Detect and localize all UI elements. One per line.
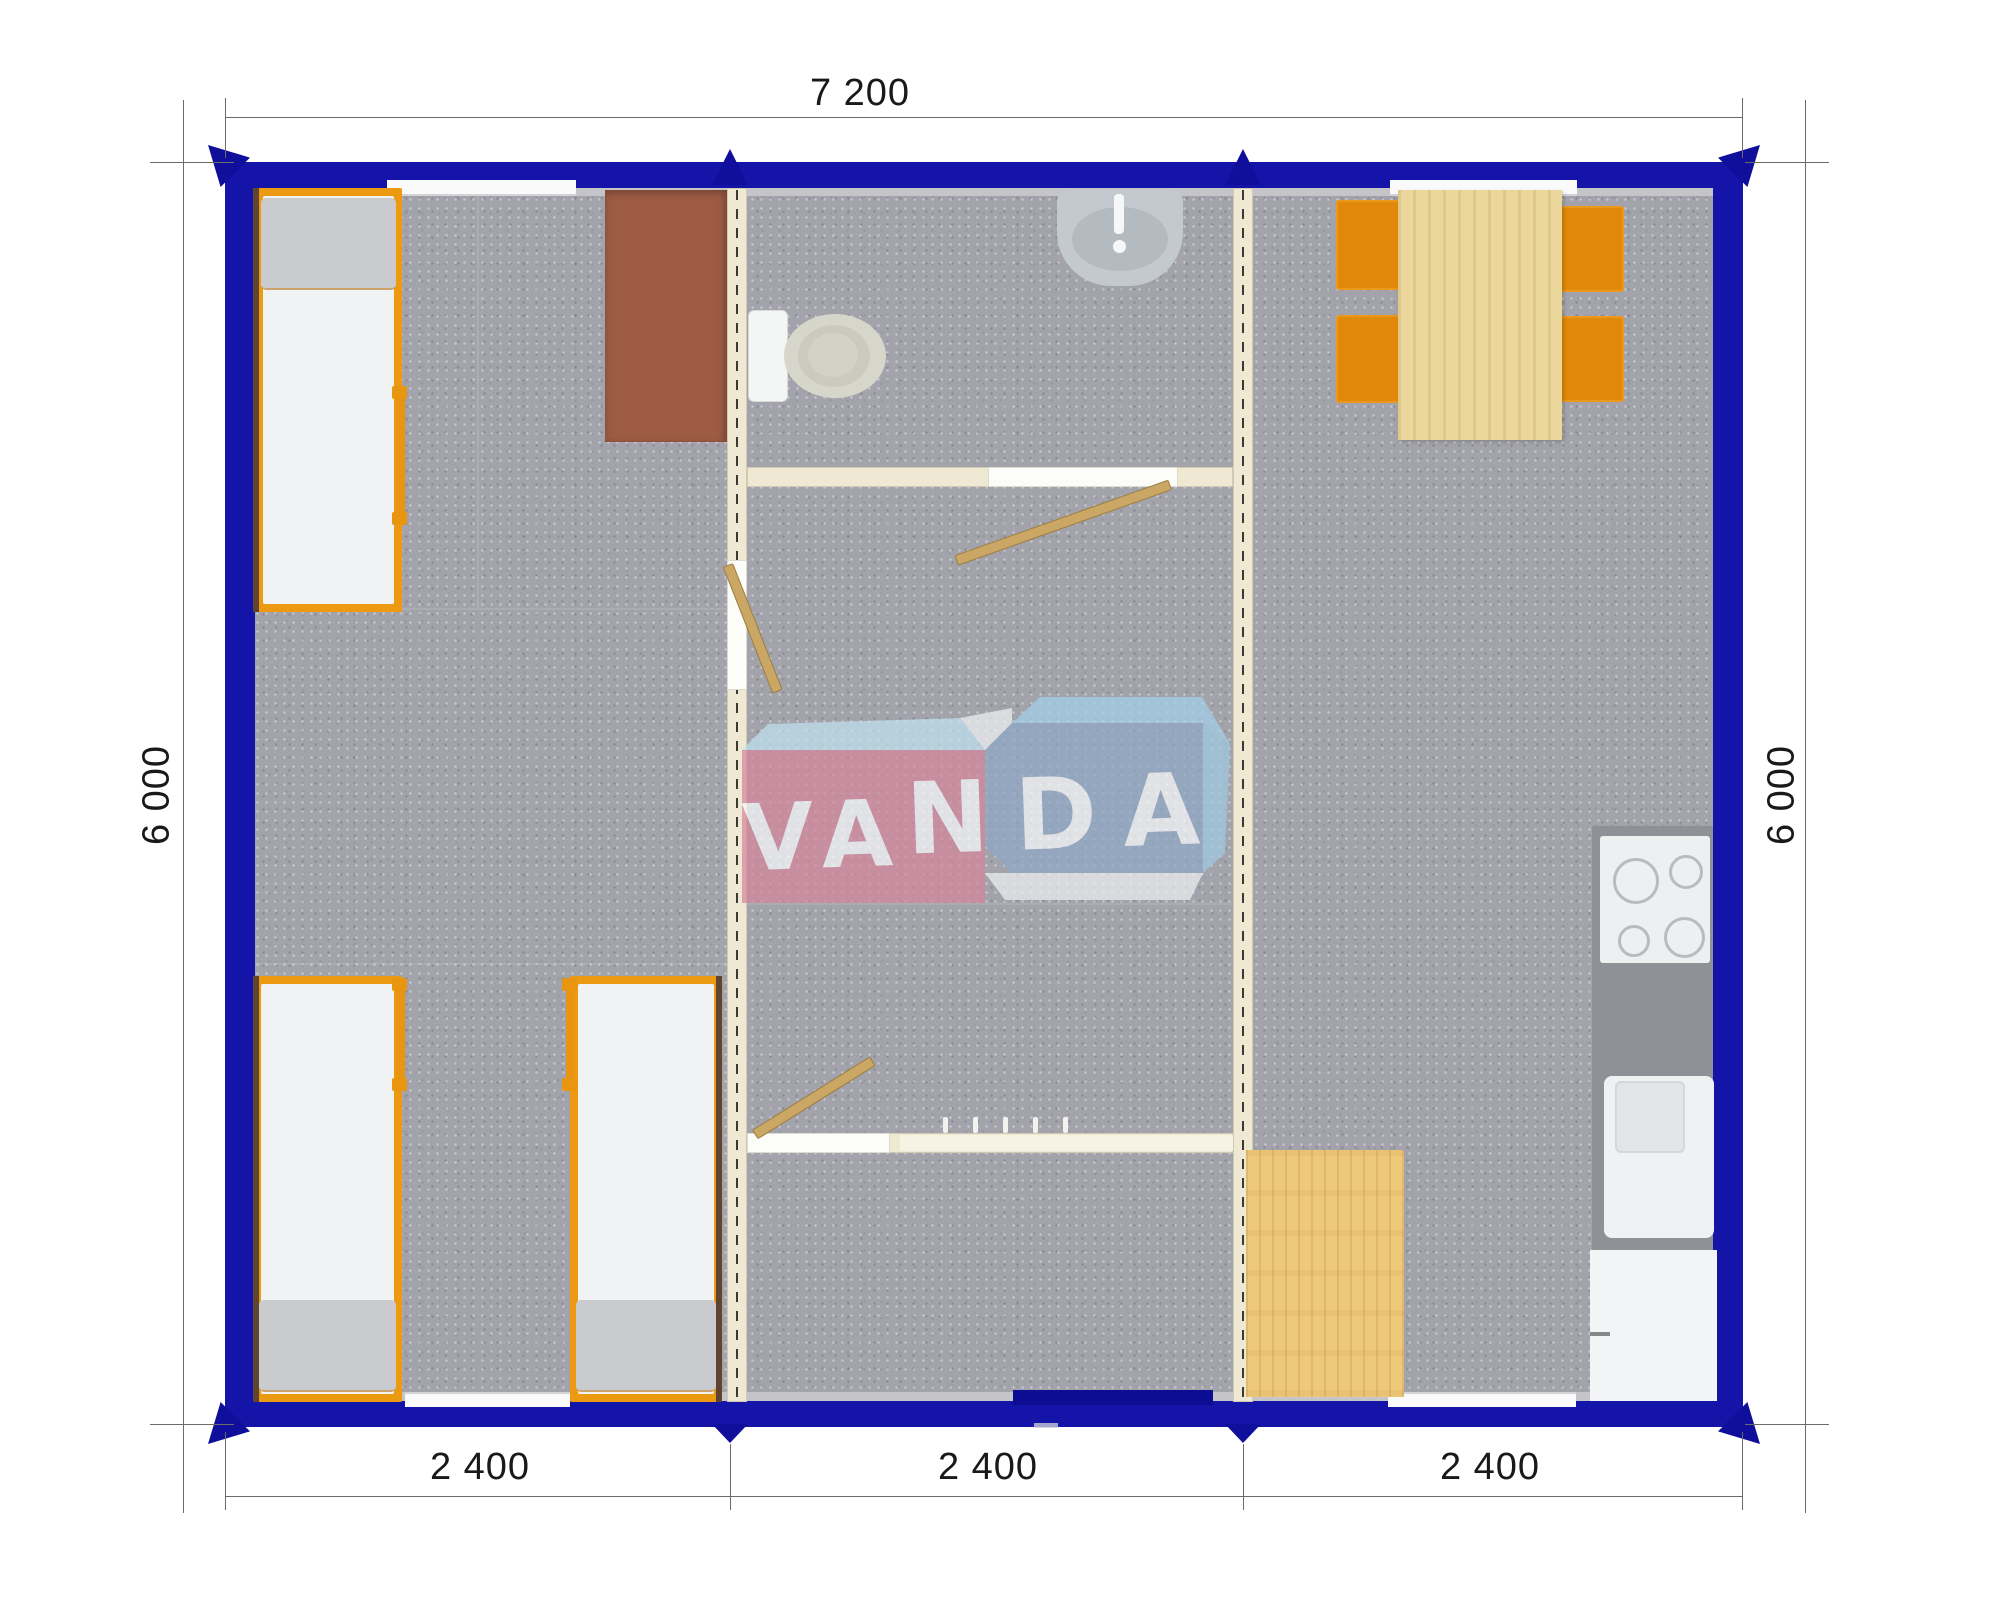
coat-hook-icon	[1003, 1117, 1008, 1133]
floor-seam	[477, 190, 479, 608]
module-joint-arrow-icon	[712, 1424, 748, 1443]
bed-rail	[716, 976, 722, 1402]
dimension-label-width: 7 200	[640, 72, 1080, 115]
chair	[1560, 206, 1624, 292]
cooktop	[1600, 836, 1710, 963]
burner-icon	[1618, 925, 1650, 957]
extension-line	[1742, 1432, 1743, 1510]
extension-line	[225, 98, 226, 158]
bed-top-left	[255, 188, 402, 612]
bed-ladder	[396, 392, 405, 522]
dimension-label-module-1: 2 400	[300, 1446, 660, 1489]
side-table	[1246, 1150, 1404, 1397]
pillow	[259, 1300, 396, 1392]
watermark-logo: VA NDA	[720, 678, 1240, 918]
hall-bench	[900, 1135, 1233, 1151]
entrance-door	[1013, 1390, 1213, 1405]
bed-ladder-block	[392, 1078, 407, 1091]
module-joint-arrow-icon	[1225, 1424, 1261, 1443]
faucet-icon	[1114, 194, 1124, 234]
dimension-line-left	[183, 100, 184, 1513]
faucet-icon	[1113, 240, 1126, 253]
bed-ladder-block	[562, 1078, 577, 1091]
bed-ladder	[566, 984, 575, 1084]
extension-line	[225, 1432, 226, 1510]
bed-ladder	[396, 984, 405, 1084]
pillow	[576, 1300, 716, 1392]
window-top-left-module	[387, 180, 576, 196]
burner-icon	[1669, 855, 1703, 889]
toilet-tank	[748, 310, 788, 402]
extension-line	[150, 1424, 234, 1425]
watermark-text-nda: NDA	[905, 769, 1228, 886]
door-threshold	[988, 467, 1178, 487]
extension-line	[1742, 98, 1743, 158]
watermark-text: VA NDA	[740, 754, 1222, 893]
extension-line	[1243, 1444, 1244, 1510]
toilet	[784, 314, 886, 398]
extension-line	[1745, 1424, 1829, 1425]
bed-bottom-left	[253, 976, 402, 1402]
bed-rail	[253, 976, 259, 1402]
exterior-wall-left	[225, 162, 255, 1427]
dimension-label-height-left: 6 000	[136, 745, 179, 845]
chair	[1336, 315, 1400, 403]
bed-bottom-middle	[570, 976, 722, 1402]
dimension-line-right	[1805, 100, 1806, 1513]
coat-hook-icon	[973, 1117, 978, 1133]
wardrobe-desk	[605, 190, 727, 442]
burner-icon	[1613, 858, 1659, 904]
dimension-line-top	[225, 117, 1743, 118]
window-bottom-left-module	[405, 1392, 570, 1407]
entrance-door-label	[1034, 1423, 1058, 1428]
coat-hook-icon	[1033, 1117, 1038, 1133]
pillow	[261, 198, 396, 290]
chair	[1336, 200, 1400, 290]
coat-hook-icon	[1063, 1117, 1068, 1133]
cabinet-handle	[1590, 1332, 1610, 1336]
dimension-line-bottom	[225, 1496, 1743, 1497]
extension-line	[730, 1444, 731, 1510]
watermark-text-va: VA	[741, 797, 908, 892]
extension-line	[1745, 162, 1829, 163]
window-bottom-right-module	[1388, 1392, 1576, 1407]
extension-line	[150, 162, 234, 163]
floor-seam	[253, 963, 727, 965]
kitchen-sink	[1604, 1076, 1714, 1238]
chair	[1560, 316, 1624, 402]
burner-icon	[1664, 917, 1705, 958]
coat-hook-icon	[943, 1117, 948, 1133]
floor-plan-canvas: VA NDA 7 200 6 000 6 000 2 400 2 400 2 4…	[0, 0, 2000, 1597]
bed-ladder-block	[392, 512, 407, 525]
exterior-wall-right	[1713, 162, 1743, 1427]
dimension-label-height-right: 6 000	[1761, 745, 1804, 845]
bed-ladder-block	[562, 978, 577, 991]
kitchen-cabinet	[1590, 1250, 1717, 1401]
dimension-label-module-3: 2 400	[1310, 1446, 1670, 1489]
bed-ladder-block	[392, 978, 407, 991]
bed-rail	[253, 188, 259, 612]
dining-table	[1398, 190, 1562, 440]
door-threshold	[747, 1133, 890, 1153]
dimension-label-module-2: 2 400	[808, 1446, 1168, 1489]
bed-ladder-block	[392, 386, 407, 399]
